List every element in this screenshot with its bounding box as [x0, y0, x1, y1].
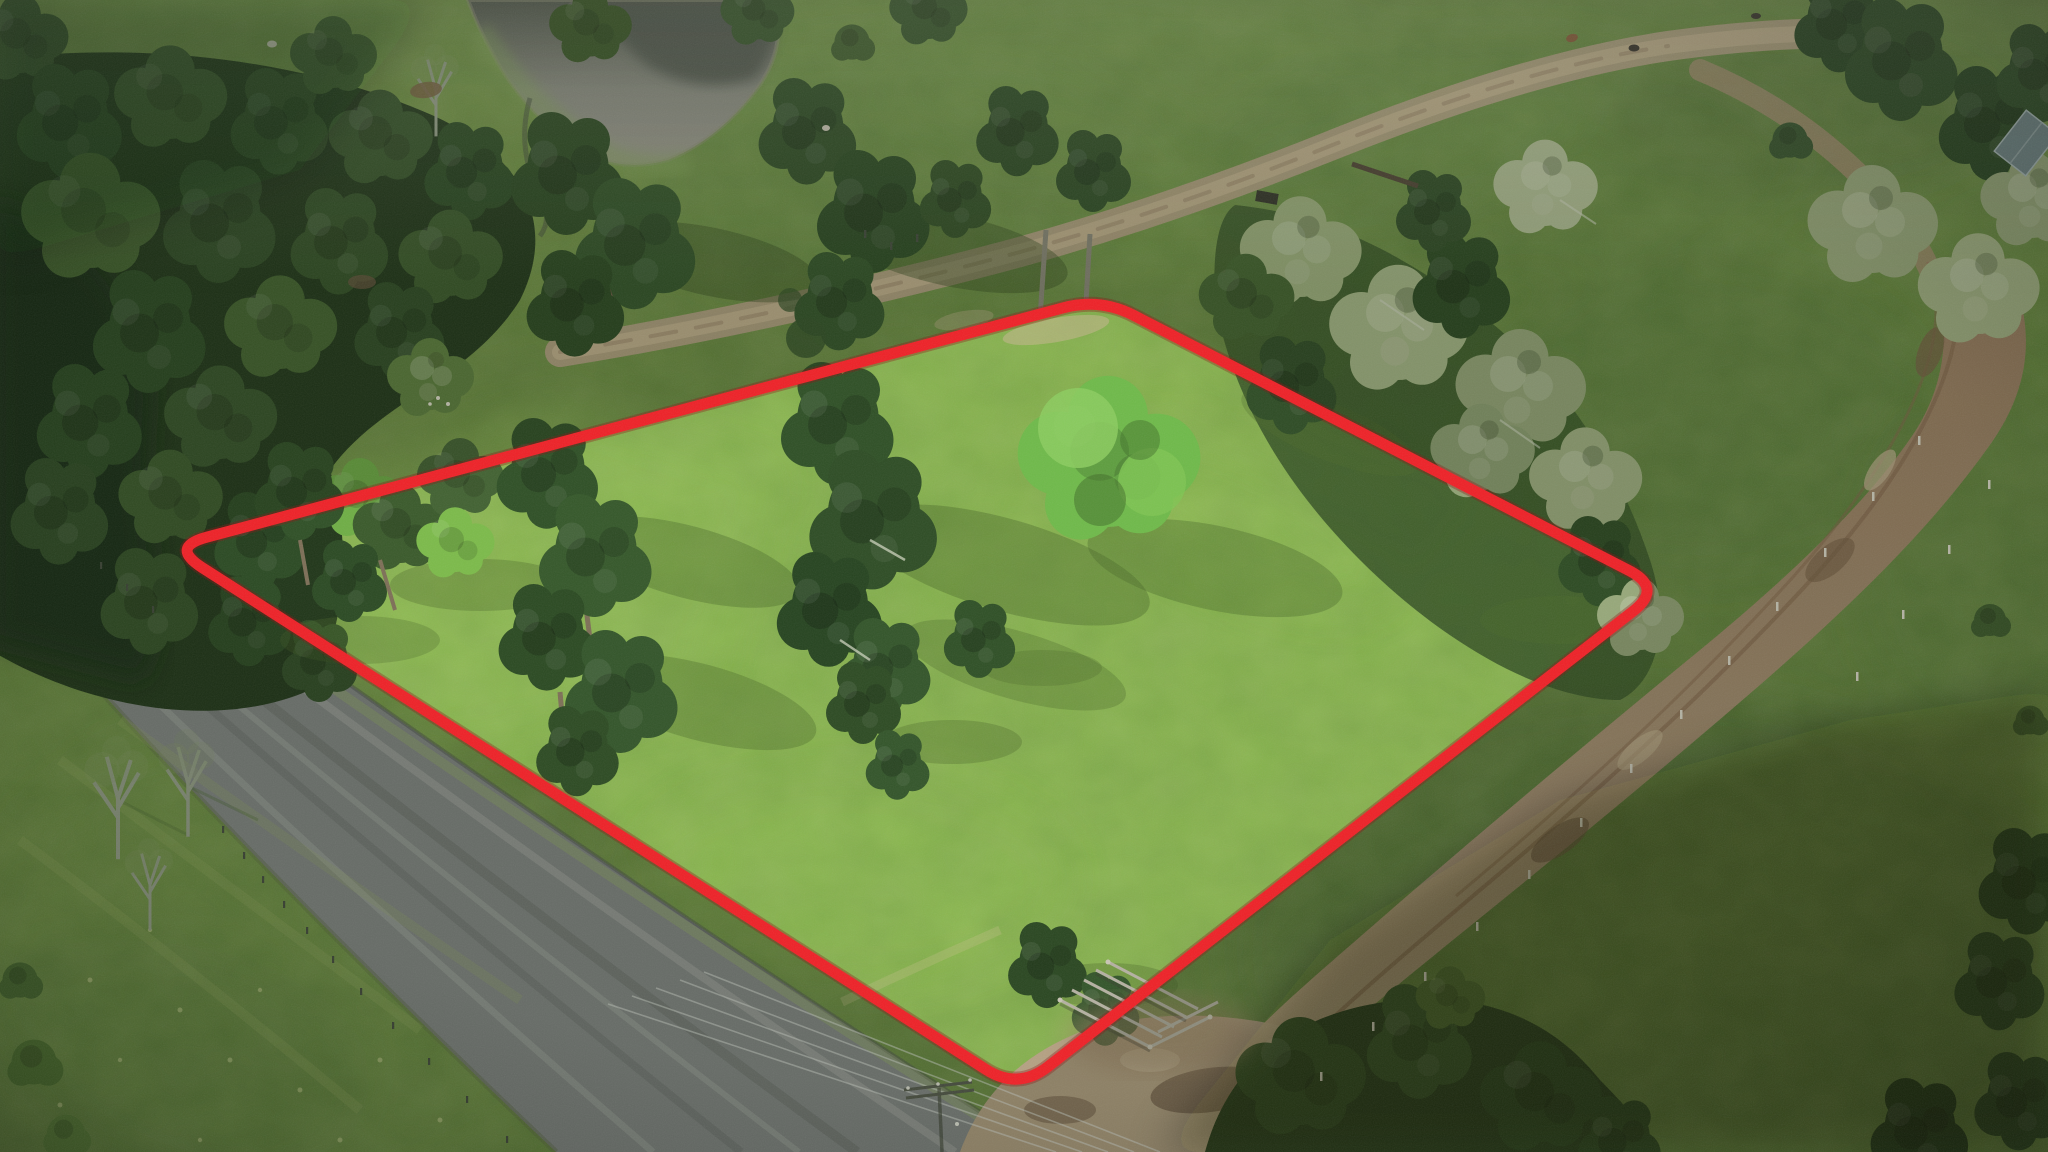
aerial-photo [0, 0, 2048, 1152]
aerial-photo-canvas [0, 0, 2048, 1152]
photo-grain [0, 0, 2048, 1152]
